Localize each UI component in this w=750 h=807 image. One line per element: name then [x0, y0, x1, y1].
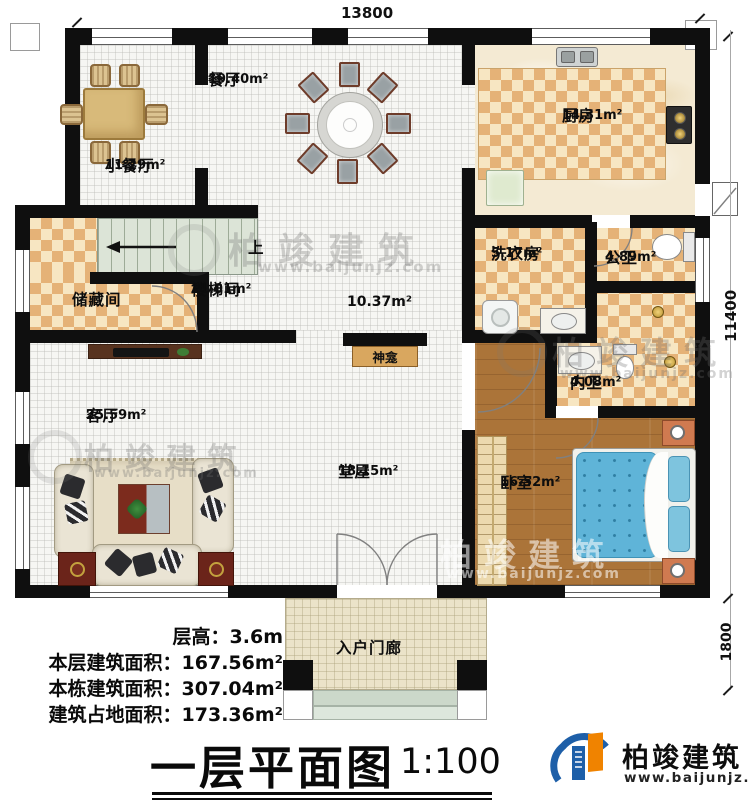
dim-porch-value: 1800	[719, 617, 735, 667]
kitchen-sink-icon	[556, 47, 598, 67]
toilet-icon-public	[652, 232, 696, 262]
info-floor-area: 本层建筑面积：167.56m²	[38, 648, 283, 675]
info-floor-height: 层高：3.6m	[38, 622, 283, 649]
shrine-cabinet: 神龛	[352, 346, 418, 367]
chair-icon	[339, 62, 360, 87]
info-building-area: 本栋建筑面积：307.04m²	[38, 674, 283, 701]
pillow-icon	[668, 456, 690, 502]
hall-door-left-arc	[337, 534, 387, 585]
title-underline-2	[152, 798, 492, 800]
coffee-table-icon	[118, 484, 170, 534]
chair-icon	[90, 64, 111, 87]
chair-icon	[386, 113, 411, 134]
floor-plan: 神龛 柏竣建筑 www.baijunjz.com 柏竣建筑 www.baijun…	[0, 0, 750, 807]
dim-right-value: 11400	[722, 292, 740, 342]
chair-icon	[145, 104, 168, 125]
watermark-url: www.baijunjz.com	[258, 258, 443, 276]
page-title: 一层平面图	[150, 732, 395, 798]
title-underline-1	[152, 792, 492, 795]
hall-door-right-arc	[387, 534, 437, 585]
stair-arrow-head	[106, 241, 120, 253]
watermark-logo-icon	[28, 430, 82, 484]
watermark-logo-icon	[168, 224, 220, 276]
title-scale: 1:100	[400, 742, 501, 782]
watermark-url: www.baijunjz.com	[446, 566, 621, 582]
nightstand-icon	[662, 420, 695, 446]
chair-icon	[337, 159, 358, 184]
chair-icon	[60, 104, 83, 125]
brand-website: www.baijunjz.com	[624, 770, 750, 786]
dining-table-small	[83, 88, 145, 140]
end-table-icon	[58, 552, 96, 586]
dim-top-value: 13800	[341, 4, 393, 22]
pillow-icon	[668, 506, 690, 552]
watermark-logo-icon	[497, 327, 547, 377]
chair-icon	[285, 113, 310, 134]
end-table-icon	[198, 552, 234, 586]
info-footprint-area: 建筑占地面积：173.36m²	[38, 700, 283, 727]
shrine-label: 神龛	[372, 350, 397, 365]
tv-cabinet-icon	[88, 344, 202, 359]
bed-sheet-fold	[644, 452, 668, 558]
chair-icon	[119, 64, 140, 87]
nightstand-icon	[662, 558, 695, 584]
kitchen-side-door-line	[714, 188, 736, 214]
fridge-icon	[486, 170, 524, 206]
dining-table-round-center	[343, 118, 357, 132]
watermark-url: www.baijunjz.com	[94, 466, 259, 481]
stove-icon	[666, 106, 692, 144]
brand-logo-icon	[550, 728, 618, 794]
sofa-cushion	[64, 500, 89, 525]
shower-knob-icon	[652, 306, 664, 318]
